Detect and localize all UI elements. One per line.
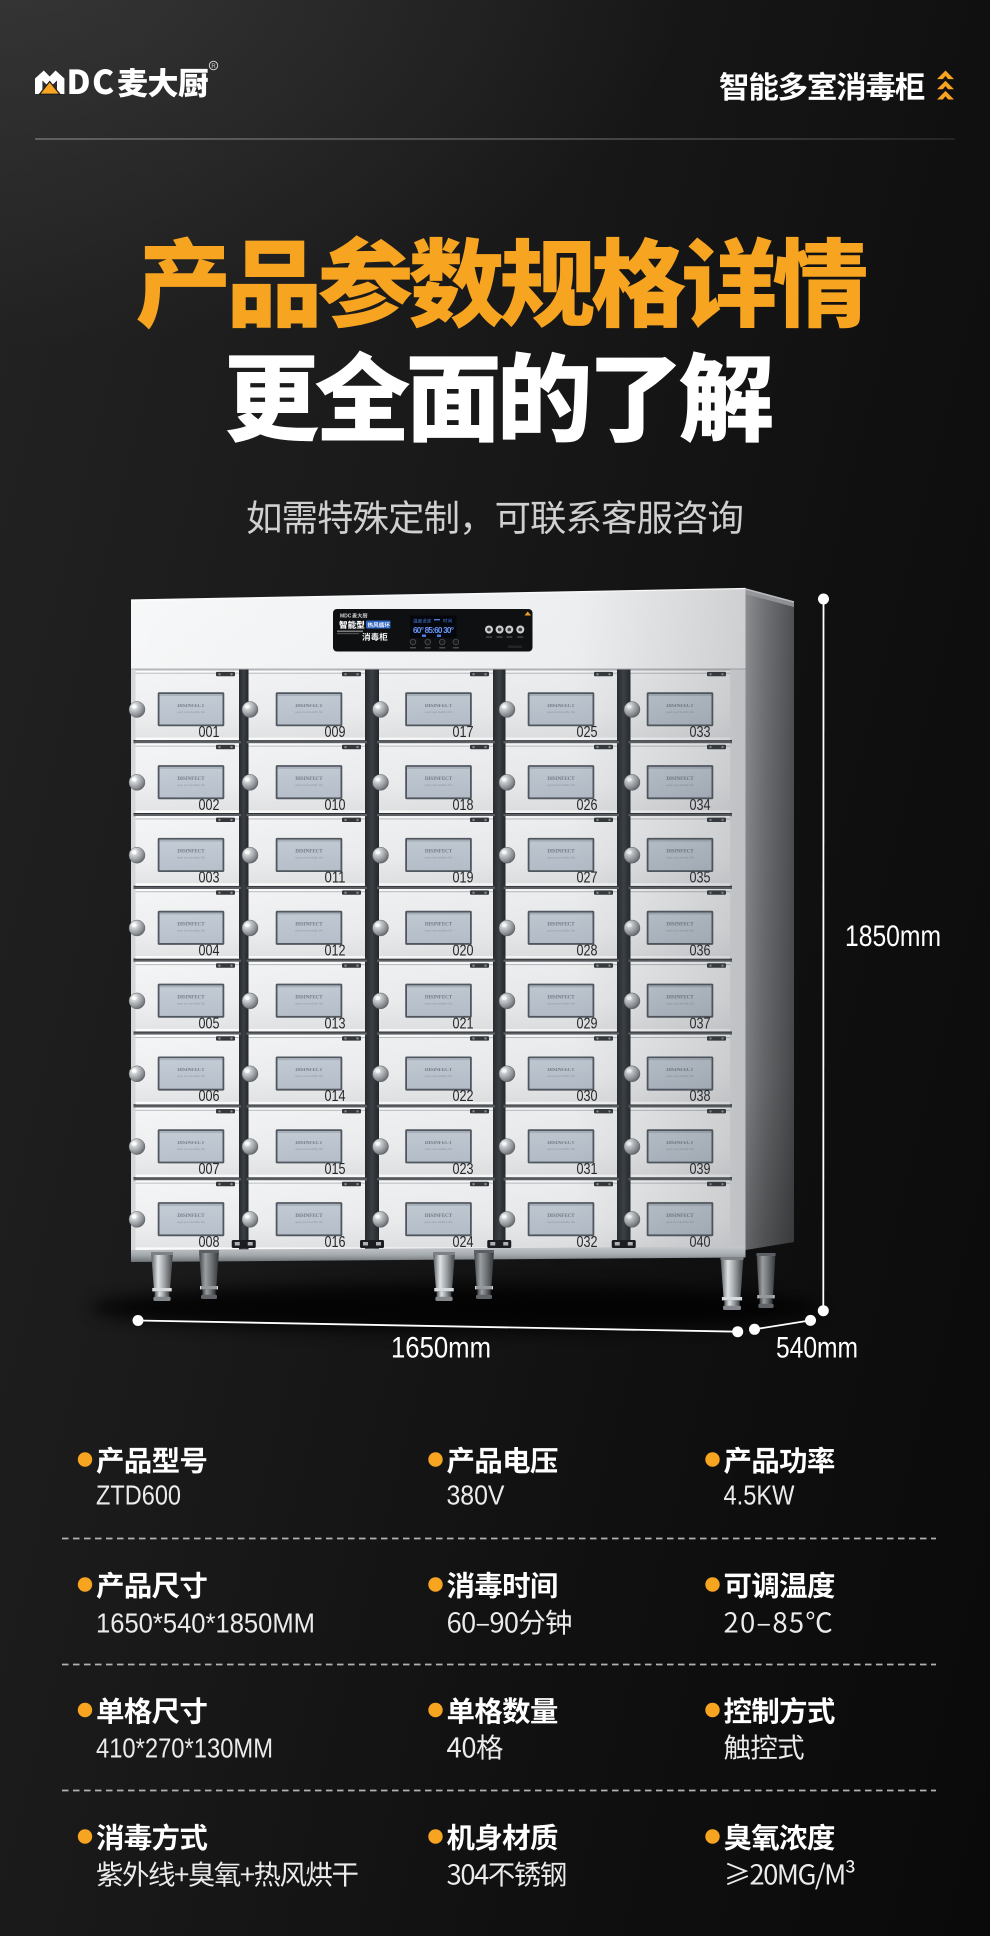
svg-text:380V: 380V [447,1480,506,1511]
svg-text:1850mm: 1850mm [845,920,941,953]
svg-text:ZTD600: ZTD600 [96,1480,181,1511]
svg-text:410*270*130MM: 410*270*130MM [96,1733,273,1764]
svg-text:1650*540*1850MM: 1650*540*1850MM [96,1608,315,1639]
svg-text:540mm: 540mm [776,1332,858,1365]
svg-text:1650mm: 1650mm [391,1332,491,1365]
svg-text:4.5KW: 4.5KW [724,1480,795,1511]
